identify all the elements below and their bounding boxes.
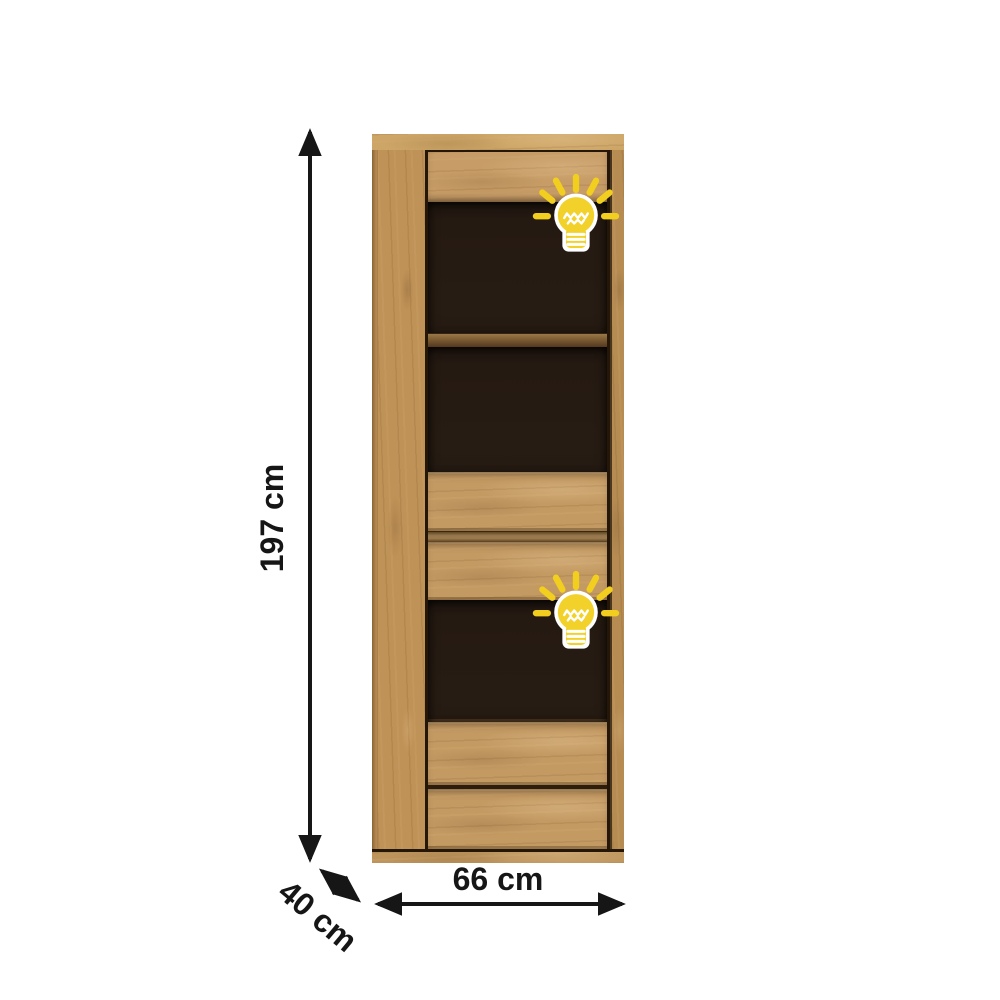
lightbulb-icon — [526, 565, 626, 665]
drawer-front-3 — [428, 722, 607, 785]
drawer-handle-groove — [428, 531, 607, 542]
drawer-front-4 — [428, 789, 607, 849]
drawer-front-1 — [428, 472, 607, 531]
width-dimension-label: 66 cm — [453, 863, 544, 895]
shelf-board — [428, 333, 607, 347]
product-dimension-figure: 197 cm 66 cm 40 cm — [0, 0, 1000, 1000]
depth-dimension-label: 40 cm — [273, 875, 363, 958]
open-compartment-middle — [428, 347, 607, 472]
lightbulb-icon — [526, 168, 626, 268]
depth-arrow — [322, 871, 358, 900]
height-dimension-label: 197 cm — [256, 464, 288, 573]
cabinet-bottom-plinth — [372, 849, 624, 863]
cabinet-top-panel — [372, 134, 624, 151]
cabinet-left-stile — [378, 150, 425, 849]
